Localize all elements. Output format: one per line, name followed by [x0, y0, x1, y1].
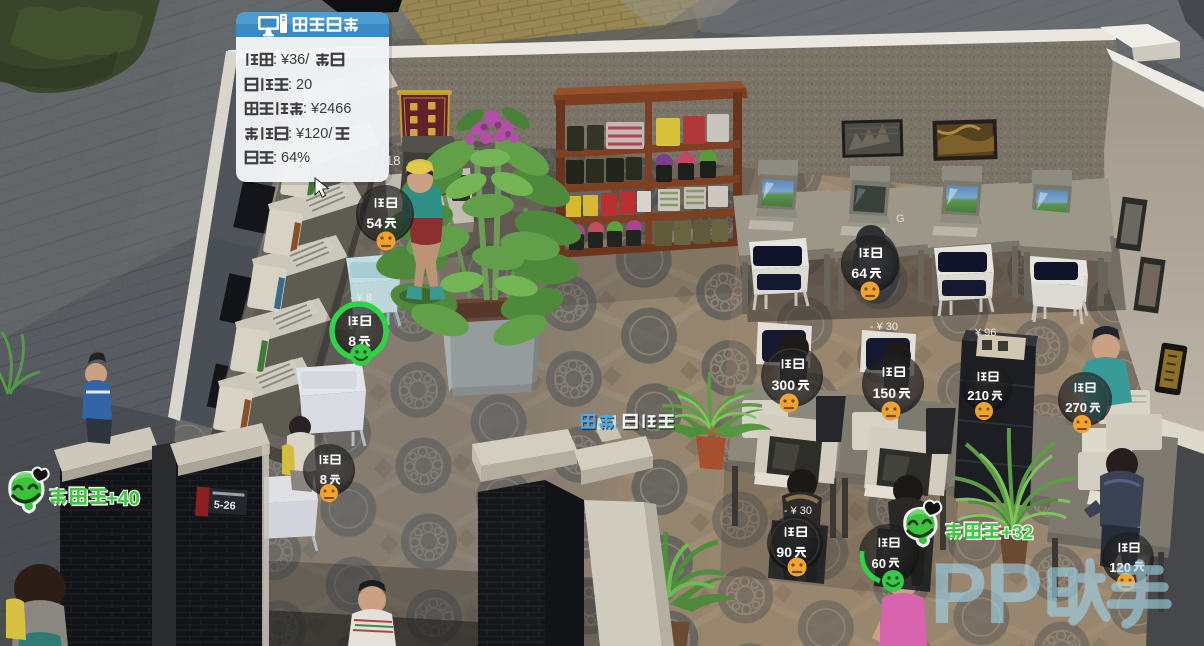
svg-text:+40: +40	[106, 488, 140, 510]
svg-text:: ¥36/: : ¥36/	[273, 52, 310, 68]
svg-text:: 20: : 20	[288, 77, 312, 93]
svg-text:PP: PP	[930, 546, 1041, 642]
svg-text:150: 150	[873, 385, 897, 401]
svg-text:90: 90	[776, 544, 792, 560]
svg-text:: 64%: : 64%	[273, 150, 310, 166]
svg-text:300: 300	[772, 377, 796, 393]
svg-text::: :	[615, 416, 620, 433]
svg-text:- ¥ 30: - ¥ 30	[870, 321, 898, 333]
svg-text:270: 270	[1065, 400, 1087, 415]
svg-text:: ¥120/: : ¥120/	[288, 126, 333, 142]
svg-text:5-26: 5-26	[213, 499, 236, 513]
svg-text:210: 210	[967, 388, 989, 403]
svg-text:54: 54	[366, 215, 382, 231]
svg-text:G: G	[896, 213, 905, 225]
svg-text:64: 64	[851, 265, 867, 281]
svg-text:60: 60	[872, 556, 886, 571]
svg-text:: ¥2466: : ¥2466	[303, 101, 351, 117]
svg-text:¥ 96: ¥ 96	[974, 327, 996, 339]
svg-text:+32: +32	[1001, 523, 1033, 544]
